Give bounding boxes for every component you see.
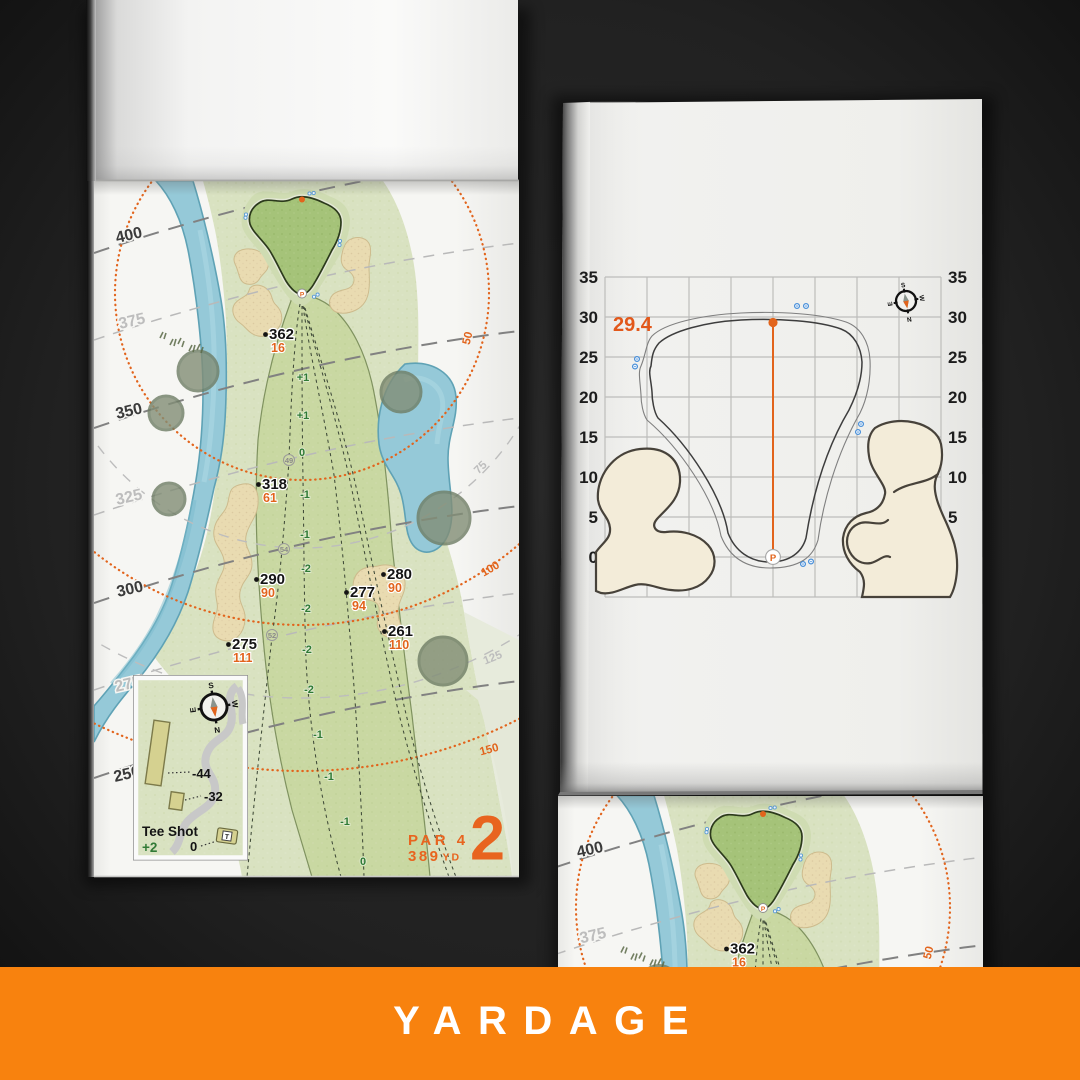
svg-text:25: 25 [948, 348, 967, 367]
svg-text:30: 30 [579, 308, 598, 327]
svg-text:15: 15 [948, 428, 967, 447]
svg-text:20: 20 [948, 388, 967, 407]
svg-text:20: 20 [579, 388, 598, 407]
svg-text:5: 5 [948, 508, 957, 527]
svg-text:YARDAGE: YARDAGE [393, 999, 705, 1043]
svg-text:35: 35 [579, 268, 598, 287]
svg-text:29.4: 29.4 [613, 314, 653, 336]
svg-text:15: 15 [579, 428, 598, 447]
svg-text:10: 10 [948, 468, 967, 487]
svg-text:30: 30 [948, 308, 967, 327]
svg-text:P: P [770, 553, 777, 564]
svg-text:35: 35 [948, 268, 967, 287]
svg-text:5: 5 [589, 508, 598, 527]
svg-text:10: 10 [579, 468, 598, 487]
svg-text:25: 25 [579, 348, 598, 367]
